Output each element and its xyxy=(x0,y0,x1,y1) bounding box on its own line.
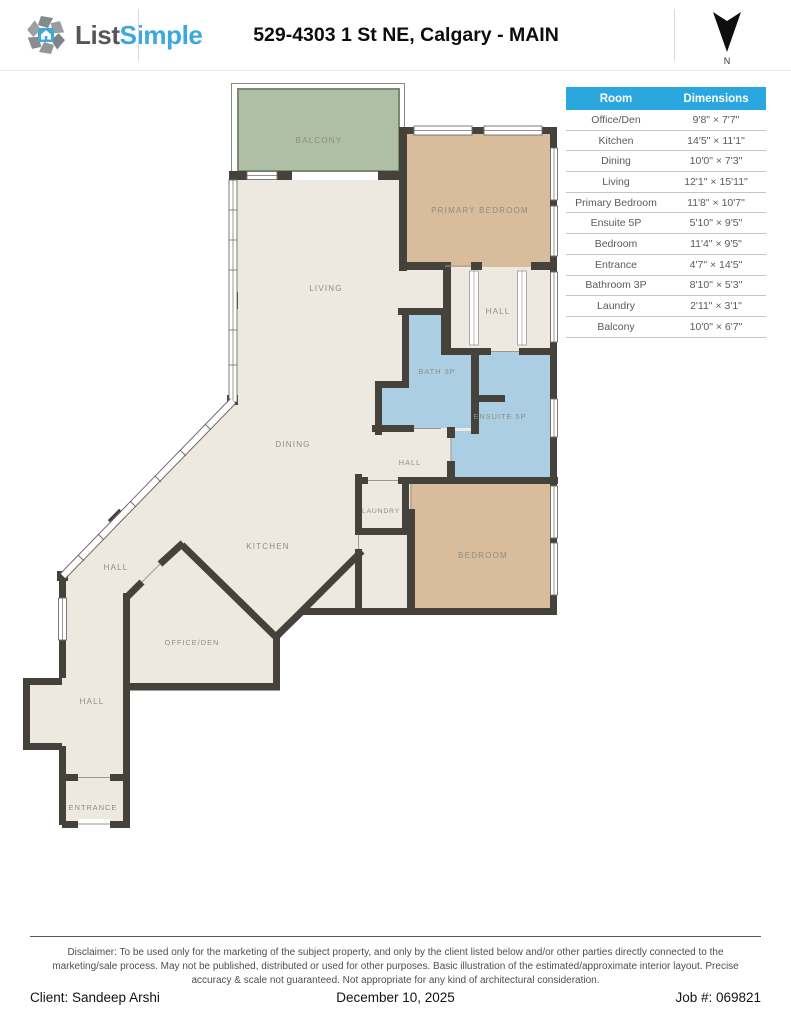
balcony-area xyxy=(238,89,399,171)
room-cell: Entrance xyxy=(566,259,666,271)
room-label-office-den: OFFICE/DEN xyxy=(165,638,220,647)
room-label-hall-middle: HALL xyxy=(399,458,422,467)
dimensions-cell: 11'8" × 10'7" xyxy=(666,197,766,209)
room-label-hall-diagonal: HALL xyxy=(104,563,129,572)
room-label-primary-bedroom: PRIMARY BEDROOM xyxy=(431,206,529,215)
room-label-bath: BATH 3P xyxy=(418,367,455,376)
footer-divider xyxy=(30,936,761,937)
room-cell: Laundry xyxy=(566,300,666,312)
dimensions-cell: 10'0" × 7'3" xyxy=(666,155,766,167)
dimensions-cell: 9'8" × 7'7" xyxy=(666,114,766,126)
dimensions-cell: 4'7" × 14'5" xyxy=(666,259,766,271)
table-row: Dining10'0" × 7'3" xyxy=(566,151,766,172)
room-label-hall-upper: HALL xyxy=(486,307,511,316)
dimensions-cell: 10'0" × 6'7" xyxy=(666,321,766,333)
table-header-dimensions: Dimensions xyxy=(666,93,766,105)
room-label-hall-lower: HALL xyxy=(80,697,105,706)
dimensions-cell: 5'10" × 9'5" xyxy=(666,217,766,229)
dimensions-cell: 12'1" × 15'11" xyxy=(666,176,766,188)
footer-meta: Client: Sandeep Arshi December 10, 2025 … xyxy=(30,990,761,1005)
room-label-balcony: BALCONY xyxy=(296,136,343,145)
table-row: Living12'1" × 15'11" xyxy=(566,172,766,193)
table-row: Ensuite 5P5'10" × 9'5" xyxy=(566,213,766,234)
table-row: Primary Bedroom11'8" × 10'7" xyxy=(566,193,766,214)
table-row: Bathroom 3P8'10" × 5'3" xyxy=(566,276,766,297)
room-cell: Ensuite 5P xyxy=(566,217,666,229)
dimensions-cell: 14'5" × 11'1" xyxy=(666,135,766,147)
room-label-dining: DINING xyxy=(275,440,310,449)
dimensions-cell: 11'4" × 9'5" xyxy=(666,238,766,250)
room-cell: Primary Bedroom xyxy=(566,197,666,209)
dimensions-cell: 8'10" × 5'3" xyxy=(666,279,766,291)
room-dimensions-table: Room Dimensions Office/Den9'8" × 7'7"Kit… xyxy=(566,87,766,338)
primary-bedroom-area xyxy=(403,130,554,267)
room-label-bedroom: BEDROOM xyxy=(458,551,508,560)
table-row: Office/Den9'8" × 7'7" xyxy=(566,110,766,131)
room-cell: Dining xyxy=(566,155,666,167)
table-row: Laundry2'11" × 3'1" xyxy=(566,296,766,317)
document-date: December 10, 2025 xyxy=(274,990,518,1005)
room-cell: Bedroom xyxy=(566,238,666,250)
room-label-ensuite: ENSUITE 5P xyxy=(473,412,526,421)
room-cell: Kitchen xyxy=(566,135,666,147)
client-name: Client: Sandeep Arshi xyxy=(30,990,274,1005)
bedroom-area xyxy=(410,482,554,609)
room-label-entrance: ENTRANCE xyxy=(69,803,118,812)
table-body: Office/Den9'8" × 7'7"Kitchen14'5" × 11'1… xyxy=(566,110,766,338)
room-label-laundry: LAUNDRY xyxy=(362,508,400,515)
room-label-kitchen: KITCHEN xyxy=(246,542,290,551)
table-row: Kitchen14'5" × 11'1" xyxy=(566,131,766,152)
dimensions-cell: 2'11" × 3'1" xyxy=(666,300,766,312)
room-cell: Office/Den xyxy=(566,114,666,126)
disclaimer-text: Disclaimer: To be used only for the mark… xyxy=(48,946,743,989)
job-number: Job #: 069821 xyxy=(517,990,761,1005)
room-label-living: LIVING xyxy=(309,284,342,293)
table-header: Room Dimensions xyxy=(566,87,766,110)
room-cell: Bathroom 3P xyxy=(566,279,666,291)
room-cell: Living xyxy=(566,176,666,188)
table-row: Entrance4'7" × 14'5" xyxy=(566,255,766,276)
table-header-room: Room xyxy=(566,93,666,105)
table-row: Balcony10'0" × 6'7" xyxy=(566,317,766,338)
room-cell: Balcony xyxy=(566,321,666,333)
floorplan-page: ListSimple 529-4303 1 St NE, Calgary - M… xyxy=(0,0,791,1024)
table-row: Bedroom11'4" × 9'5" xyxy=(566,234,766,255)
